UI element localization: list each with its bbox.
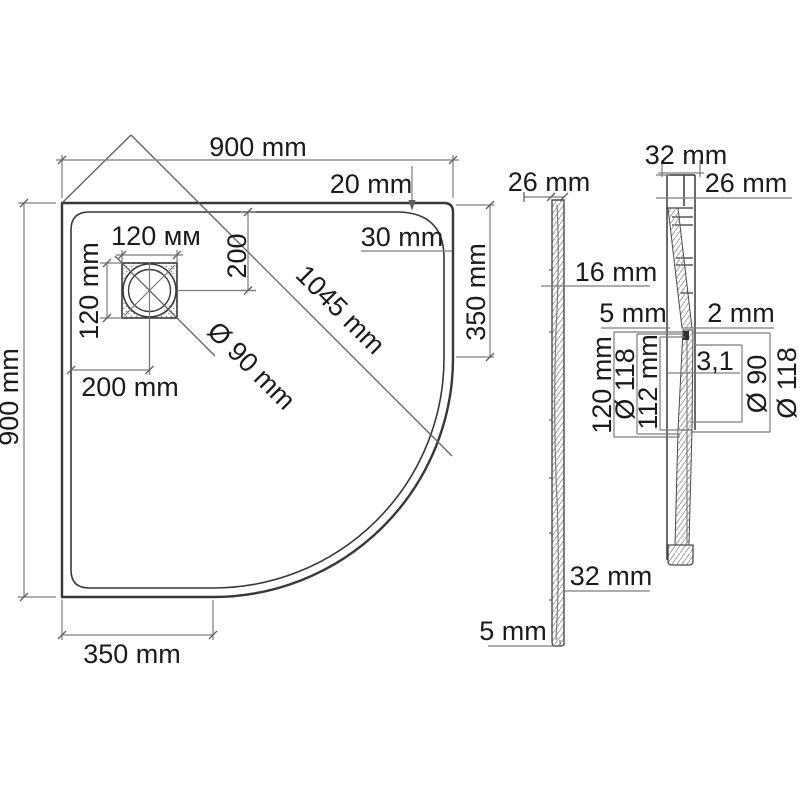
- dim-side-rim-label: 26 mm: [508, 167, 591, 197]
- plan-view: 900 mm 900 mm 20 mm 30 mm 120 мм: [0, 132, 494, 669]
- dim-drain-diameter-label: Ø 90 mm: [202, 316, 302, 416]
- dim-section-insert-width: 112 mm: [633, 334, 685, 430]
- dim-drain-from-top: 200: [222, 208, 256, 295]
- dim-section-wall-thickness: 3,1: [668, 346, 740, 376]
- dim-right-edge: 350 mm: [456, 201, 494, 361]
- dim-rim-top: 20 mm: [330, 166, 416, 211]
- dim-drain-width: 120 мм: [111, 221, 201, 262]
- section-wall-upper: [668, 208, 692, 328]
- dim-section-flange-dia-label: Ø 118: [772, 347, 800, 419]
- dim-top-width-label: 900 mm: [209, 132, 307, 162]
- dim-bottom-edge-label: 350 mm: [83, 639, 181, 669]
- dim-drain-height-label: 120 mm: [74, 242, 104, 340]
- technical-drawing-page: 900 mm 900 mm 20 mm 30 mm 120 мм: [0, 0, 800, 800]
- dim-section-insert-width-label: 112 mm: [633, 334, 663, 430]
- dim-drain-from-top-label: 200: [222, 233, 252, 278]
- dim-section-rim-height-label: 26 mm: [705, 168, 788, 198]
- dim-drain-width-label: 120 мм: [111, 221, 201, 251]
- dim-side-base-label: 32 mm: [570, 561, 653, 591]
- dim-left-height: 900 mm: [0, 199, 56, 601]
- section-junction: [683, 331, 689, 340]
- dim-side-rim: 26 mm: [508, 167, 591, 202]
- dim-left-height-label: 900 mm: [0, 348, 24, 446]
- dim-right-edge-label: 350 mm: [461, 243, 491, 341]
- dim-section-ledge-left-label: 5 mm: [599, 298, 667, 328]
- diagonal-extension-line: [62, 135, 131, 203]
- dim-side-foot: 5 mm: [479, 616, 560, 646]
- drawing-canvas: 900 mm 900 mm 20 mm 30 mm 120 мм: [0, 0, 800, 800]
- dim-section-wall-thickness-label: 3,1: [696, 346, 734, 376]
- dim-side-foot-label: 5 mm: [479, 616, 547, 646]
- section-bottom-flange: [668, 545, 693, 565]
- dim-section-rim-width-label: 32 mm: [645, 140, 728, 170]
- section-pipe-lower: [675, 430, 692, 545]
- dim-drain-height: 120 mm: [74, 242, 122, 340]
- dim-side-wall-label: 16 mm: [575, 257, 658, 287]
- dim-bottom-edge: 350 mm: [58, 600, 217, 669]
- dim-drain-from-left-label: 200 mm: [81, 372, 179, 402]
- section-view: 32 mm 26 mm 5 mm 2 mm 120 mm Ø 118 112 m…: [587, 140, 800, 565]
- section-wall-recess: [678, 330, 693, 430]
- dim-rim-top-label: 20 mm: [330, 169, 413, 199]
- dim-side-base: 32 mm: [563, 561, 652, 591]
- dim-section-drain-hole-label: Ø 90: [742, 355, 772, 414]
- dim-corner-radius: 30 mm: [361, 222, 452, 252]
- dim-section-ledge-right-label: 2 mm: [707, 298, 775, 328]
- dim-corner-radius-label: 30 mm: [361, 222, 444, 252]
